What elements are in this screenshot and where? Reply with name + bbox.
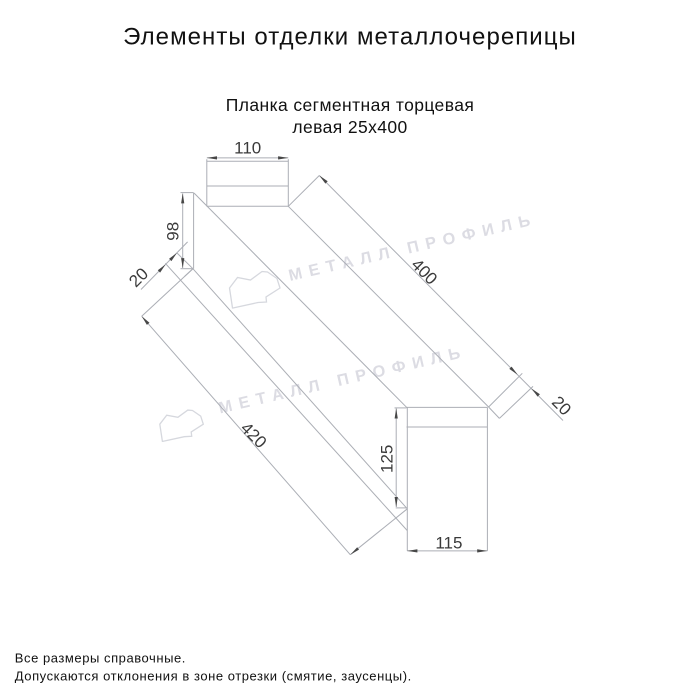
svg-text:98: 98 (164, 222, 183, 241)
svg-text:Планка сегментная торцевая: Планка сегментная торцевая (226, 95, 474, 115)
svg-text:МЕТАЛЛ ПРОФИЛЬ: МЕТАЛЛ ПРОФИЛЬ (217, 343, 469, 418)
svg-text:20: 20 (125, 264, 152, 291)
svg-text:Элементы отделки металлочерепи: Элементы отделки металлочерепицы (123, 24, 577, 51)
svg-text:110: 110 (234, 139, 261, 158)
svg-text:400: 400 (407, 255, 440, 288)
svg-text:левая 25х400: левая 25х400 (292, 117, 407, 137)
svg-text:115: 115 (435, 533, 462, 552)
svg-text:Допускаются отклонения в зоне: Допускаются отклонения в зоне отрезки (с… (15, 669, 412, 684)
svg-text:420: 420 (237, 418, 270, 451)
svg-text:20: 20 (548, 392, 575, 419)
svg-text:125: 125 (377, 445, 396, 473)
svg-text:Все размеры справочные.: Все размеры справочные. (15, 651, 186, 666)
